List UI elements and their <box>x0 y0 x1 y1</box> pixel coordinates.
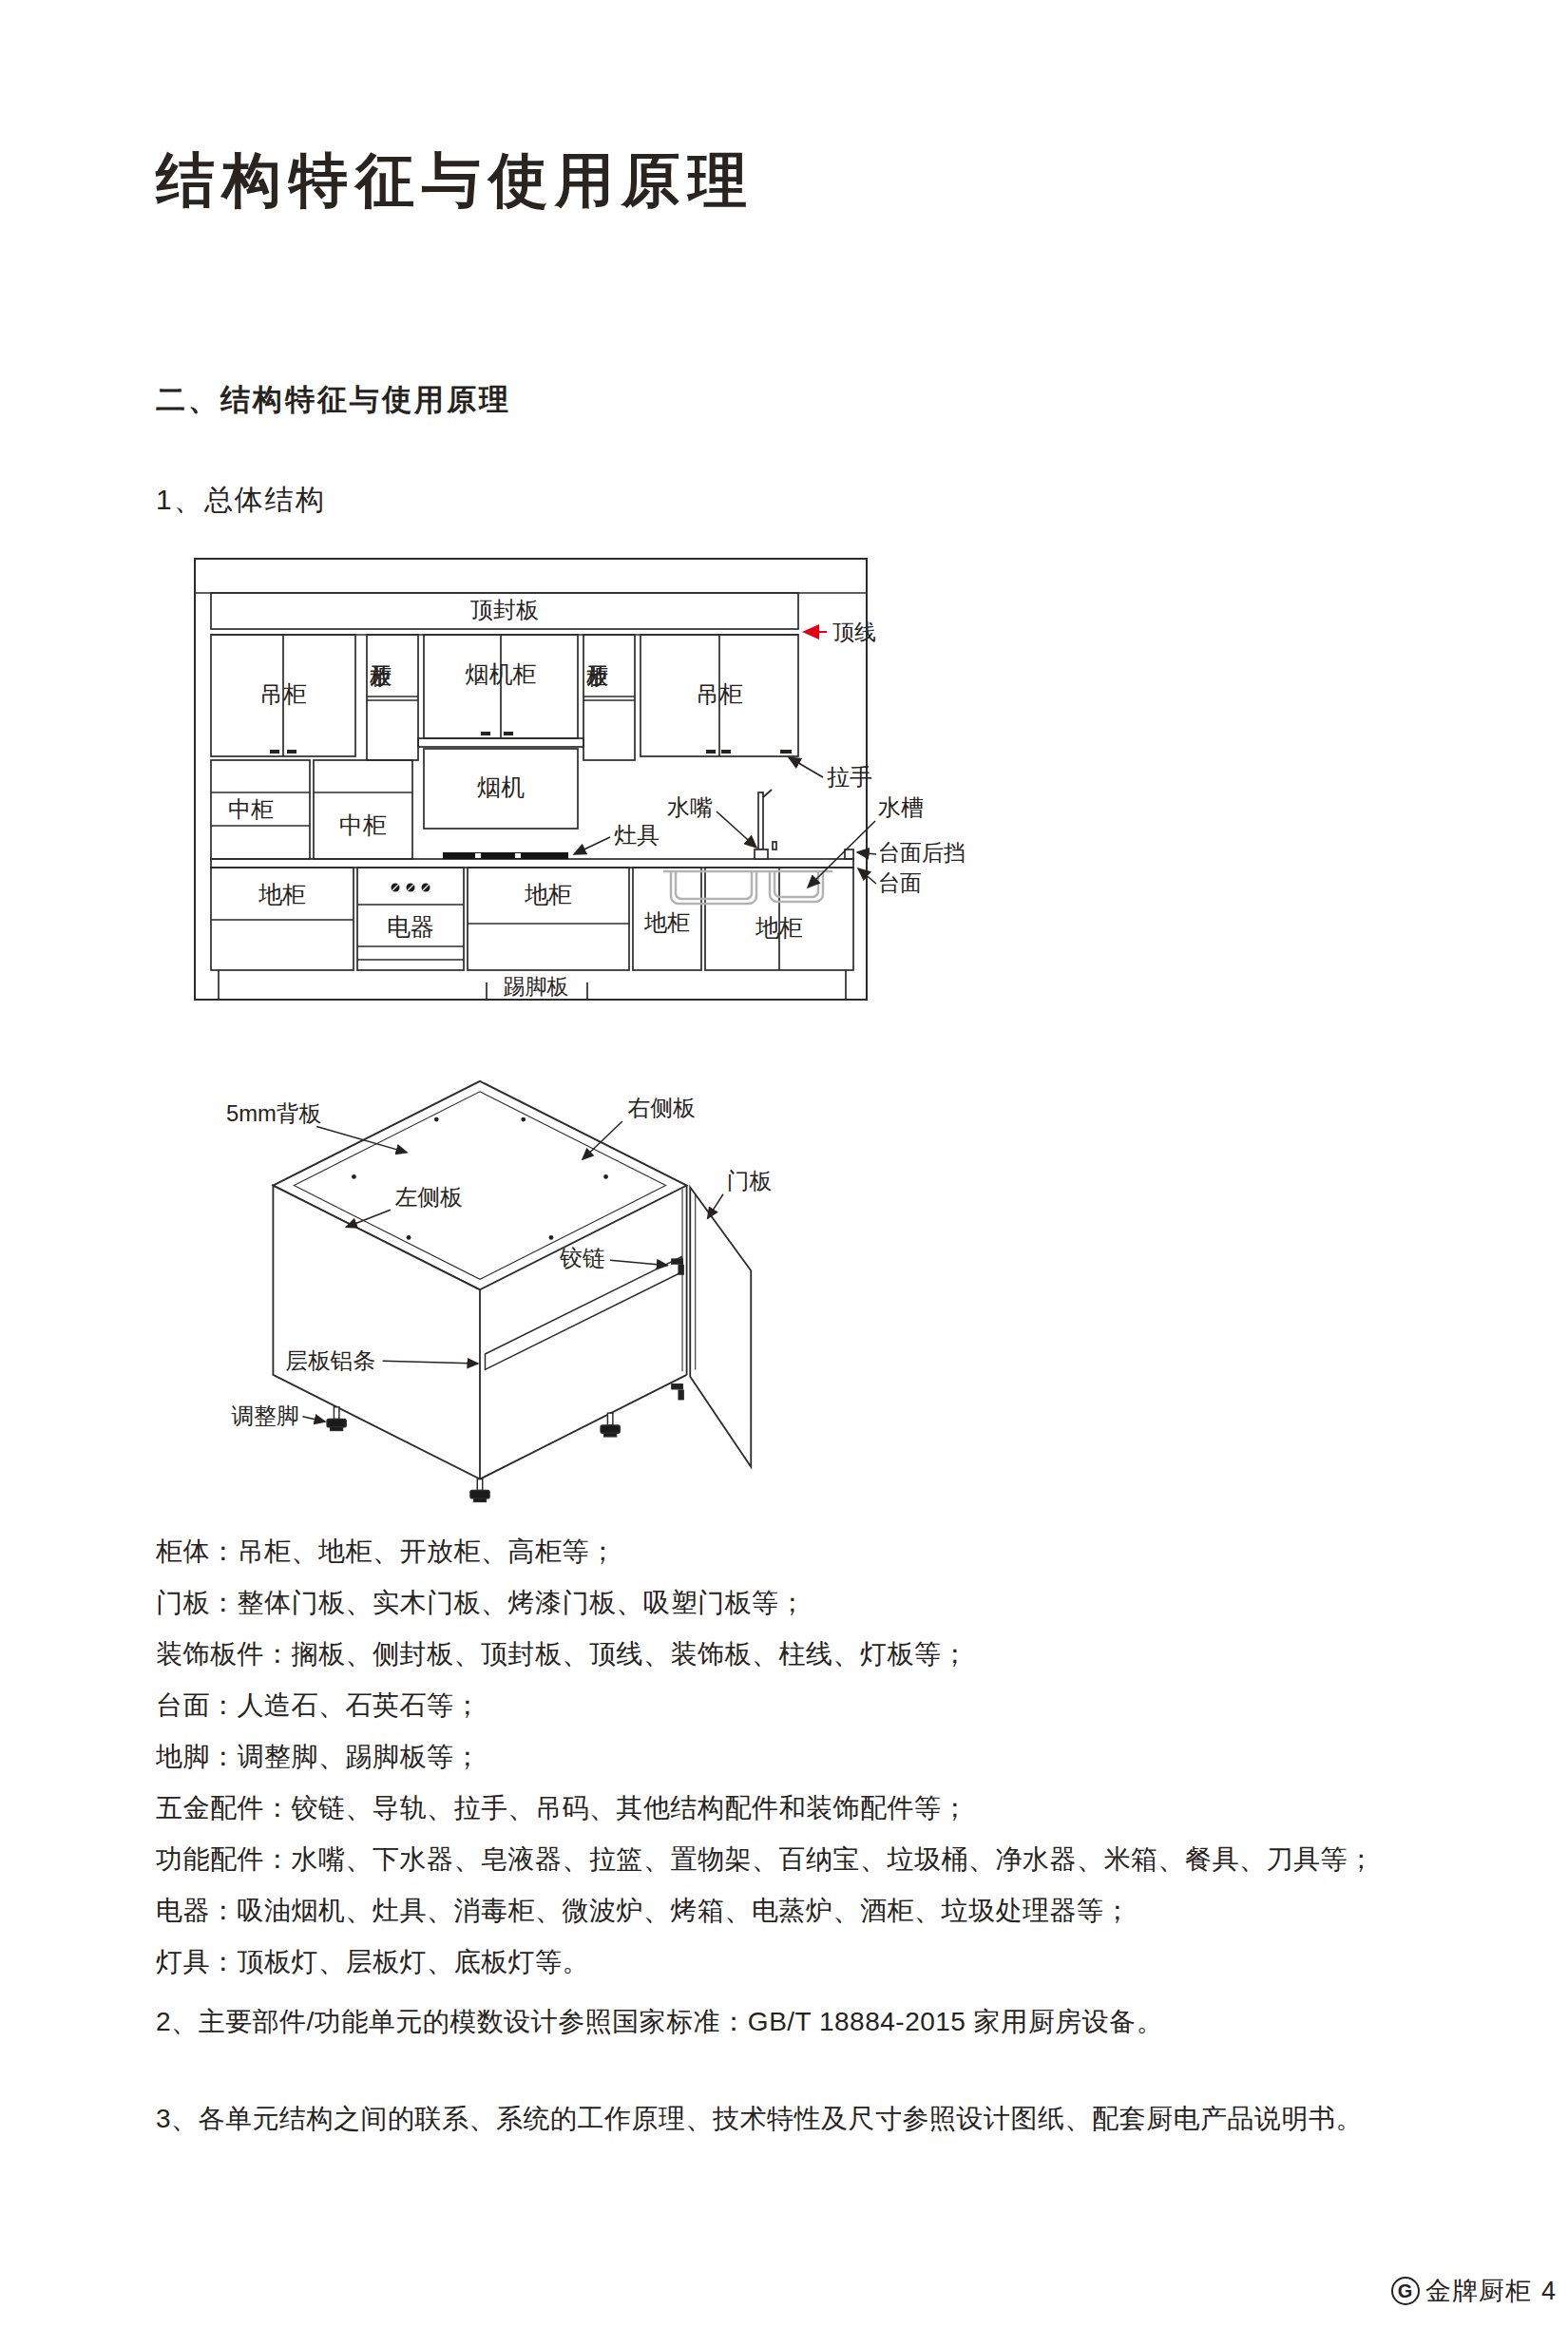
cabinet-shelf <box>485 1257 681 1370</box>
section-heading: 二、结构特征与使用原理 <box>156 380 511 420</box>
counter-backsplash-label: 台面后挡 <box>878 840 966 865</box>
list-item: 门板：整体门板、实木门板、烤漆门板、吸塑门板等； <box>156 1577 1448 1629</box>
counter-backsplash-rect <box>845 849 853 859</box>
page-title: 结构特征与使用原理 <box>156 141 755 220</box>
countertop-rect <box>211 859 853 868</box>
list-item: 功能配件：水嘴、下水器、皂液器、拉篮、置物架、百纳宝、垃圾桶、净水器、米箱、餐具… <box>156 1834 1448 1885</box>
list-item: 地脚：调整脚、踢脚板等； <box>156 1731 1448 1783</box>
list-item: 台面：人造石、石英石等； <box>156 1680 1448 1731</box>
hinge-label: 铰链 <box>559 1245 605 1270</box>
open-cabinet-2-label: 开放柜 <box>586 665 609 689</box>
kitchen-elevation-diagram: 顶封板 顶线 吊柜 开放柜 烟机柜 开放柜 吊柜 拉手 中柜 中柜 烟机 灶具 … <box>190 555 979 1025</box>
list-item: 装饰板件：搁板、侧封板、顶封板、顶线、装饰板、柱线、灯板等； <box>156 1629 1448 1680</box>
open-cabinet-1-label: 开放柜 <box>370 665 392 689</box>
list-item: 五金配件：铰链、导轨、拉手、吊码、其他结构配件和装饰配件等； <box>156 1783 1448 1834</box>
open-cabinet-1-rect <box>367 635 418 760</box>
manual-page: 结构特征与使用原理 二、结构特征与使用原理 1、总体结构 <box>0 0 1568 2328</box>
base-cabinet-1-label: 地柜 <box>258 881 306 907</box>
toe-kick-label: 踢脚板 <box>504 974 569 999</box>
base-cabinet-3d-svg: 5mm背板 右侧板 左侧板 铰链 门板 层板铝条 调整脚 <box>176 1057 784 1509</box>
paragraph-2: 2、主要部件/功能单元的模数设计参照国家标准：GB/T 18884-2015 家… <box>156 2003 1486 2041</box>
footer-page-number: 4 <box>1541 2277 1557 2306</box>
handle-label: 拉手 <box>827 764 872 790</box>
sink-label: 水槽 <box>878 794 924 820</box>
list-item: 柜体：吊柜、地柜、开放柜、高柜等； <box>156 1526 1448 1577</box>
base-cabinet-2-label: 地柜 <box>525 881 572 907</box>
component-list: 柜体：吊柜、地柜、开放柜、高柜等； 门板：整体门板、实木门板、烤漆门板、吸塑门板… <box>156 1526 1448 1988</box>
list-item: 灯具：顶板灯、层板灯、底板灯等。 <box>156 1937 1448 1988</box>
cooktop-glyph <box>443 852 568 859</box>
shelf-strip-label: 层板铝条 <box>285 1347 375 1373</box>
sink-glyph <box>663 871 832 904</box>
wall-cabinet-left-label: 吊柜 <box>259 680 307 707</box>
list-item: 电器：吸油烟机、灶具、消毒柜、微波炉、烤箱、电蒸炉、酒柜、垃圾处理器等； <box>156 1885 1448 1937</box>
mid-cabinet-right-label: 中柜 <box>339 811 387 838</box>
door-handle-marks <box>270 732 792 754</box>
adjust-foot-label: 调整脚 <box>232 1403 299 1428</box>
back-panel-label: 5mm背板 <box>226 1100 322 1126</box>
hood-cabinet-label: 烟机柜 <box>466 660 537 687</box>
top-board-label: 顶封板 <box>470 597 539 622</box>
countertop-label: 台面 <box>878 870 922 895</box>
kitchen-elevation-svg: 顶封板 顶线 吊柜 开放柜 烟机柜 开放柜 吊柜 拉手 中柜 中柜 烟机 灶具 … <box>190 555 979 1025</box>
footer-brand: 金牌厨柜 <box>1425 2274 1532 2308</box>
crown-line-label: 顶线 <box>832 620 876 644</box>
page-footer: G 金牌厨柜 4 <box>1391 2274 1557 2308</box>
base-cabinet-3d-diagram: 5mm背板 右侧板 左侧板 铰链 门板 层板铝条 调整脚 <box>176 1057 784 1509</box>
faucet-glyph <box>755 790 776 859</box>
brand-logo-icon: G <box>1391 2277 1420 2305</box>
open-cabinet-2-rect <box>583 635 635 760</box>
door-panel-label: 门板 <box>727 1168 773 1193</box>
right-panel-label: 右侧板 <box>627 1095 696 1120</box>
cabinet-door <box>690 1187 751 1466</box>
subsection-heading: 1、总体结构 <box>156 481 326 520</box>
base-cabinet-4-label: 地柜 <box>755 914 803 941</box>
appliance-knobs <box>392 884 430 892</box>
faucet-label: 水嘴 <box>667 794 713 820</box>
appliance-label: 电器 <box>387 913 434 940</box>
mid-cabinet-left-label: 中柜 <box>228 796 274 822</box>
base-cabinet-3-label: 地柜 <box>643 909 690 935</box>
left-panel-label: 左侧板 <box>394 1184 463 1210</box>
wall-cabinet-right-label: 吊柜 <box>696 680 743 707</box>
paragraph-3: 3、各单元结构之间的联系、系统的工作原理、技术特性及尺寸参照设计图纸、配套厨电产… <box>156 2100 1486 2138</box>
mid-cabinet-right-rect <box>314 760 412 859</box>
hood-label: 烟机 <box>477 773 525 800</box>
cooktop-label: 灶具 <box>614 822 660 848</box>
